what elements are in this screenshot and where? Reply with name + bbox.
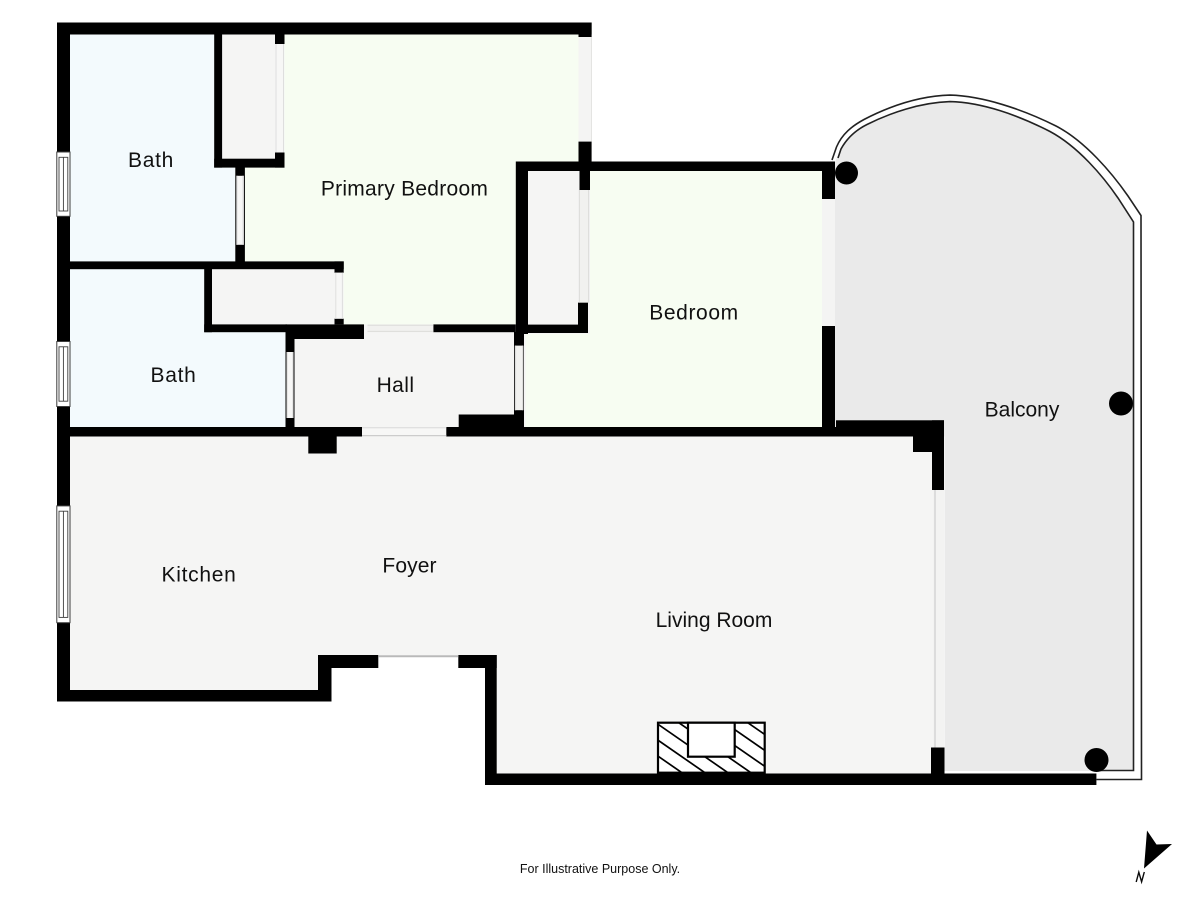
svg-text:Foyer: Foyer bbox=[382, 555, 436, 578]
svg-text:Balcony: Balcony bbox=[985, 399, 1060, 422]
svg-text:Hall: Hall bbox=[377, 374, 415, 397]
svg-text:Bath: Bath bbox=[151, 364, 197, 387]
svg-text:Bedroom: Bedroom bbox=[649, 302, 738, 325]
svg-text:Living Room: Living Room bbox=[656, 609, 773, 632]
svg-text:For Illustrative Purpose Only.: For Illustrative Purpose Only. bbox=[520, 862, 680, 876]
svg-text:Kitchen: Kitchen bbox=[162, 564, 237, 587]
svg-text:Primary Bedroom: Primary Bedroom bbox=[321, 178, 488, 201]
svg-text:Bath: Bath bbox=[128, 149, 174, 172]
